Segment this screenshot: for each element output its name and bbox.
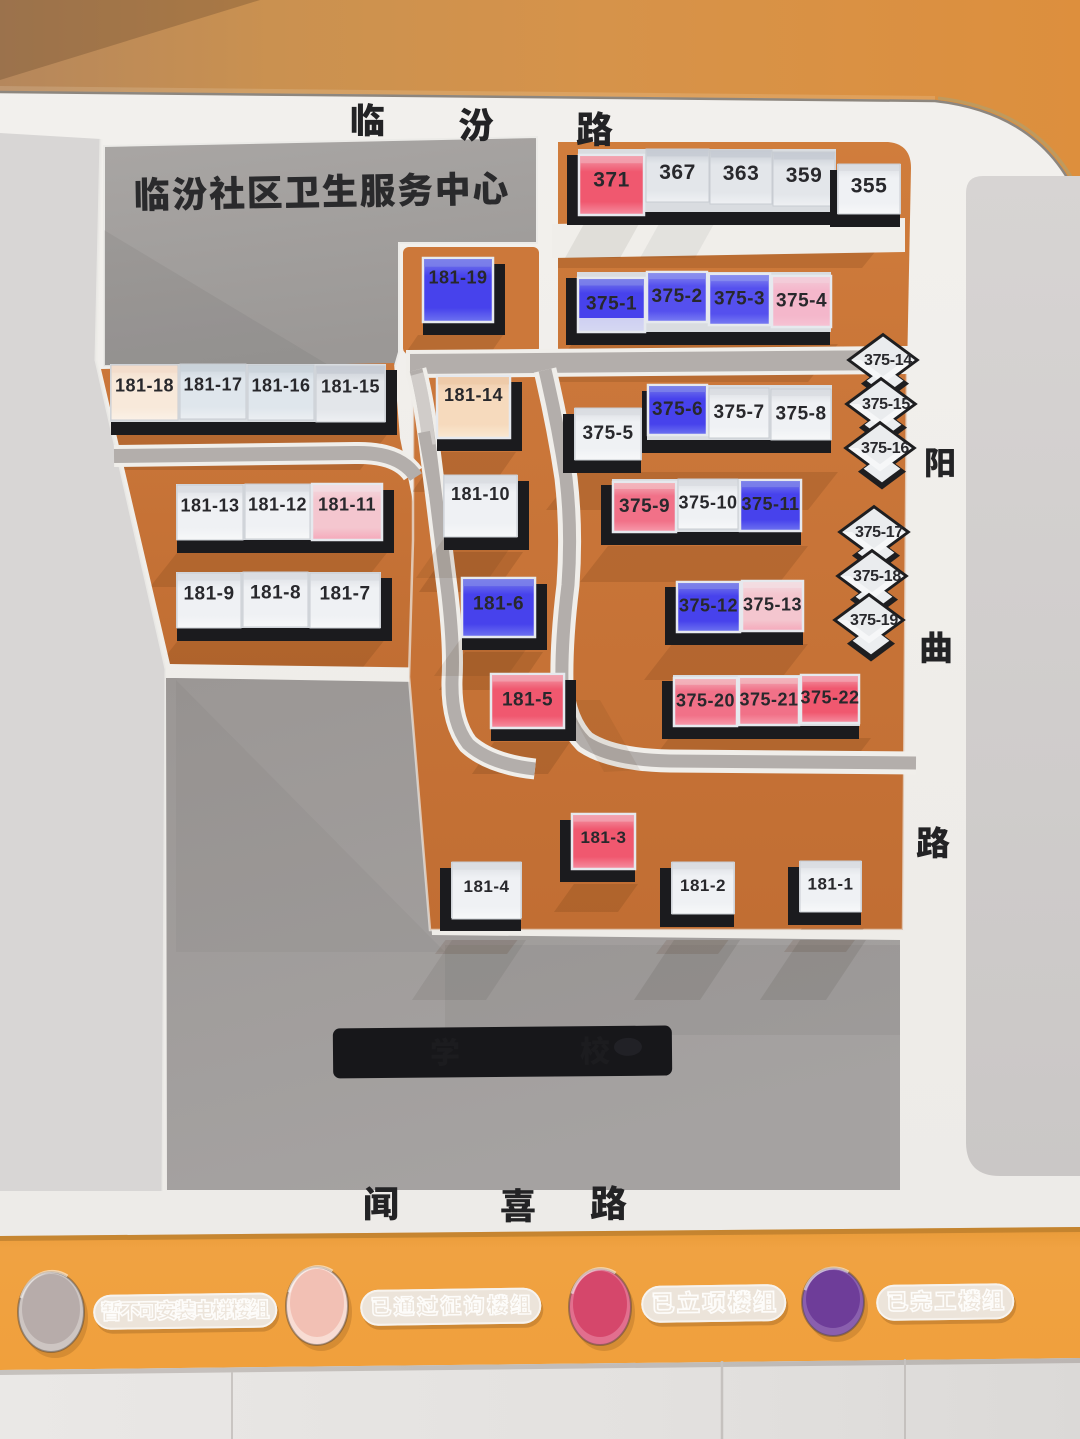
svg-text:181-7: 181-7 <box>319 584 370 605</box>
svg-text:181-14: 181-14 <box>444 385 503 405</box>
svg-text:375-1: 375-1 <box>586 294 637 315</box>
svg-text:181-4: 181-4 <box>464 877 510 896</box>
svg-text:371: 371 <box>593 169 630 192</box>
svg-text:181-2: 181-2 <box>680 876 726 895</box>
svg-text:375-2: 375-2 <box>651 286 702 307</box>
svg-text:375-6: 375-6 <box>652 399 703 420</box>
svg-text:375-10: 375-10 <box>678 493 737 513</box>
svg-text:181-1: 181-1 <box>808 875 854 894</box>
svg-text:375-14: 375-14 <box>864 352 912 369</box>
svg-text:181-17: 181-17 <box>183 374 242 394</box>
svg-text:355: 355 <box>851 175 888 198</box>
svg-text:181-5: 181-5 <box>502 690 553 711</box>
svg-text:375-20: 375-20 <box>676 691 735 711</box>
svg-text:181-19: 181-19 <box>428 268 487 288</box>
svg-text:375-5: 375-5 <box>582 423 633 444</box>
svg-text:181-12: 181-12 <box>248 494 307 514</box>
svg-text:181-18: 181-18 <box>115 375 174 395</box>
svg-text:375-19: 375-19 <box>850 612 898 629</box>
svg-text:181-13: 181-13 <box>180 495 239 515</box>
svg-text:375-16: 375-16 <box>861 440 909 457</box>
svg-text:181-15: 181-15 <box>321 377 380 397</box>
svg-text:181-10: 181-10 <box>451 484 510 504</box>
svg-text:363: 363 <box>723 162 760 185</box>
svg-text:375-8: 375-8 <box>775 403 826 424</box>
svg-text:181-6: 181-6 <box>473 594 524 615</box>
svg-text:375-17: 375-17 <box>855 524 903 541</box>
svg-text:181-3: 181-3 <box>581 828 627 847</box>
svg-text:375-18: 375-18 <box>853 568 901 585</box>
svg-text:181-9: 181-9 <box>183 584 234 605</box>
svg-text:181-8: 181-8 <box>250 583 301 604</box>
svg-text:181-16: 181-16 <box>251 375 310 395</box>
svg-text:375-21: 375-21 <box>739 690 798 710</box>
svg-text:375-12: 375-12 <box>679 596 738 616</box>
svg-text:181-11: 181-11 <box>318 495 376 515</box>
svg-text:375-3: 375-3 <box>714 288 765 309</box>
svg-text:375-9: 375-9 <box>619 496 670 517</box>
svg-text:375-15: 375-15 <box>862 396 910 413</box>
svg-text:359: 359 <box>786 164 823 187</box>
svg-text:375-4: 375-4 <box>776 290 827 311</box>
svg-text:375-22: 375-22 <box>800 688 859 708</box>
svg-text:375-11: 375-11 <box>741 494 799 514</box>
svg-text:375-7: 375-7 <box>713 402 764 423</box>
svg-text:375-13: 375-13 <box>743 595 802 615</box>
svg-text:367: 367 <box>659 161 696 184</box>
